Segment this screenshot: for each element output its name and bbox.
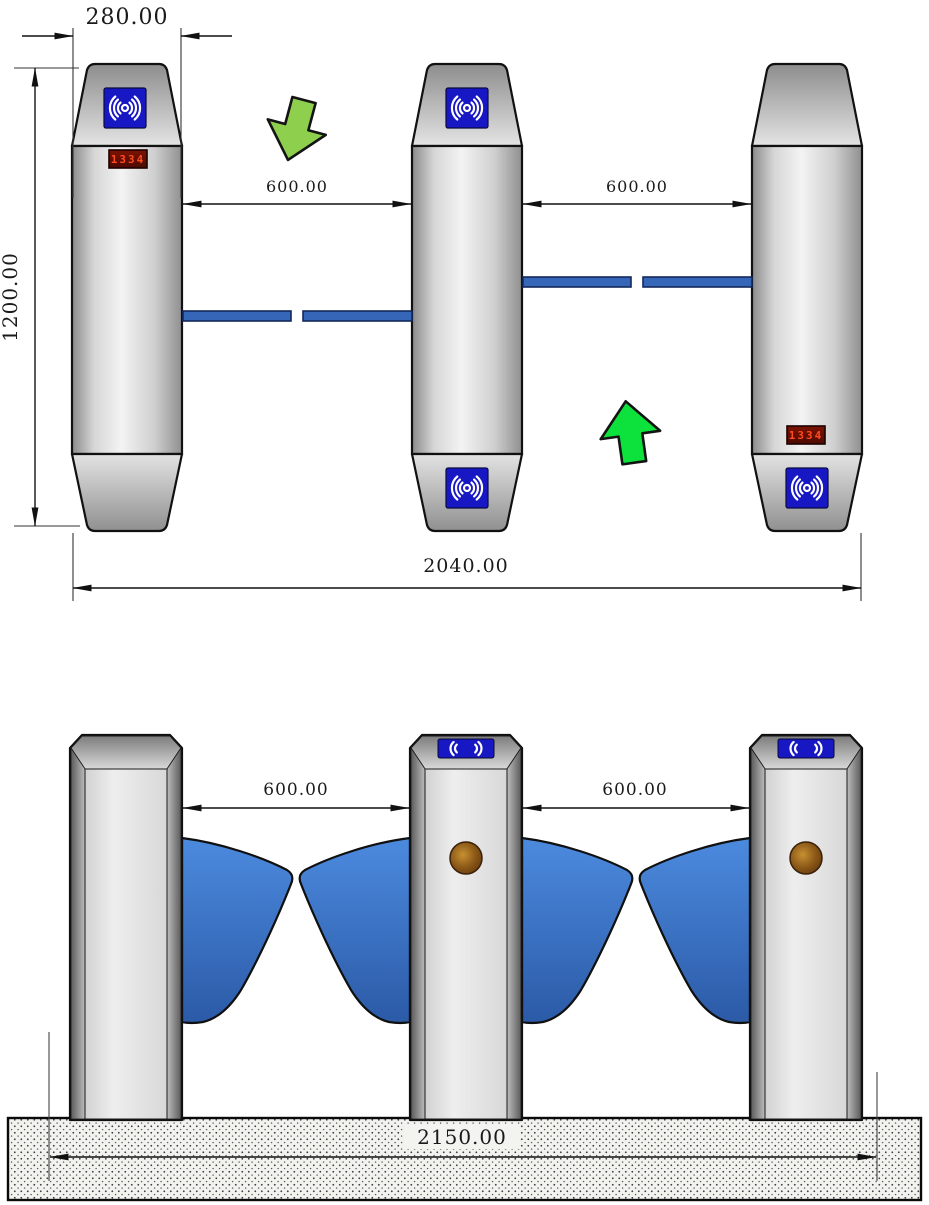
dim-label-cabinet-length: 1200.00	[0, 252, 22, 342]
dim-label-lane-right: 600.00	[606, 177, 668, 196]
top-view: 1334 1334 280.00 1200.00 600.00 600.00	[0, 5, 862, 601]
cabinet-middle	[412, 64, 522, 531]
flap-wing	[640, 838, 750, 1023]
dimension-cabinet-length	[14, 68, 80, 526]
pillar-left	[70, 735, 182, 1120]
dim-label-cabinet-width: 280.00	[86, 5, 169, 30]
led-display-right: 1334	[787, 426, 825, 444]
rfid-reader-icon	[104, 88, 146, 128]
indicator-light-icon	[450, 842, 482, 874]
turnstile-dimension-drawing: 1334 1334 280.00 1200.00 600.00 600.00	[0, 0, 929, 1205]
rfid-reader-icon	[786, 468, 828, 508]
flap-arm	[183, 311, 291, 321]
flap-arm	[303, 311, 412, 321]
pillar-right	[750, 735, 862, 1120]
flap-arm	[523, 277, 631, 287]
flap-wing	[522, 838, 632, 1023]
down-arrow-icon	[259, 92, 333, 167]
led-display-left: 1334	[109, 150, 147, 168]
pillar-middle	[410, 735, 522, 1120]
rfid-reader-icon	[446, 468, 488, 508]
dim-label-overall-top: 2040.00	[423, 555, 509, 577]
rfid-reader-icon	[438, 739, 494, 758]
dim-label-front-lane-left: 600.00	[263, 780, 328, 800]
dim-label-lane-left: 600.00	[266, 177, 328, 196]
rfid-reader-icon	[778, 739, 834, 758]
rfid-reader-icon	[446, 88, 488, 128]
up-arrow-icon	[596, 397, 664, 467]
dim-label-overall-front: 2150.00	[417, 1125, 507, 1149]
flap-arm	[643, 277, 752, 287]
flap-wing	[300, 838, 410, 1023]
cabinet-right	[752, 64, 862, 531]
indicator-light-icon	[790, 842, 822, 874]
flap-wing	[182, 838, 292, 1023]
dim-label-front-lane-right: 600.00	[602, 780, 667, 800]
front-view: 600.00 600.00 2150.00	[8, 735, 921, 1200]
led-display-value: 1334	[111, 153, 146, 166]
cabinet-left	[72, 64, 182, 531]
led-display-value: 1334	[789, 429, 824, 442]
drawing-canvas: 1334 1334 280.00 1200.00 600.00 600.00	[0, 0, 929, 1205]
